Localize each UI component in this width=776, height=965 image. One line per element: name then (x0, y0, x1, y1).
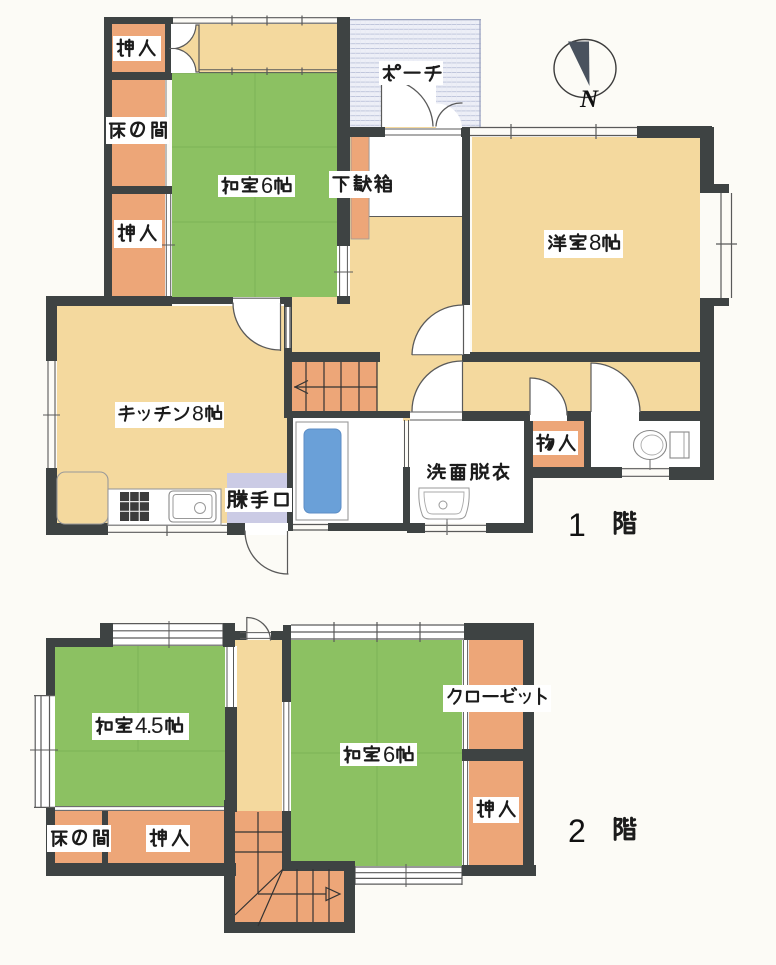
svg-text:8: 8 (192, 401, 204, 425)
svg-text:6: 6 (261, 173, 273, 198)
svg-text:5: 5 (151, 713, 163, 738)
svg-text:8: 8 (589, 230, 601, 255)
svg-text:6: 6 (383, 742, 395, 767)
svg-text:N: N (579, 86, 599, 113)
svg-text:2: 2 (568, 813, 586, 849)
svg-text:1: 1 (568, 507, 586, 543)
